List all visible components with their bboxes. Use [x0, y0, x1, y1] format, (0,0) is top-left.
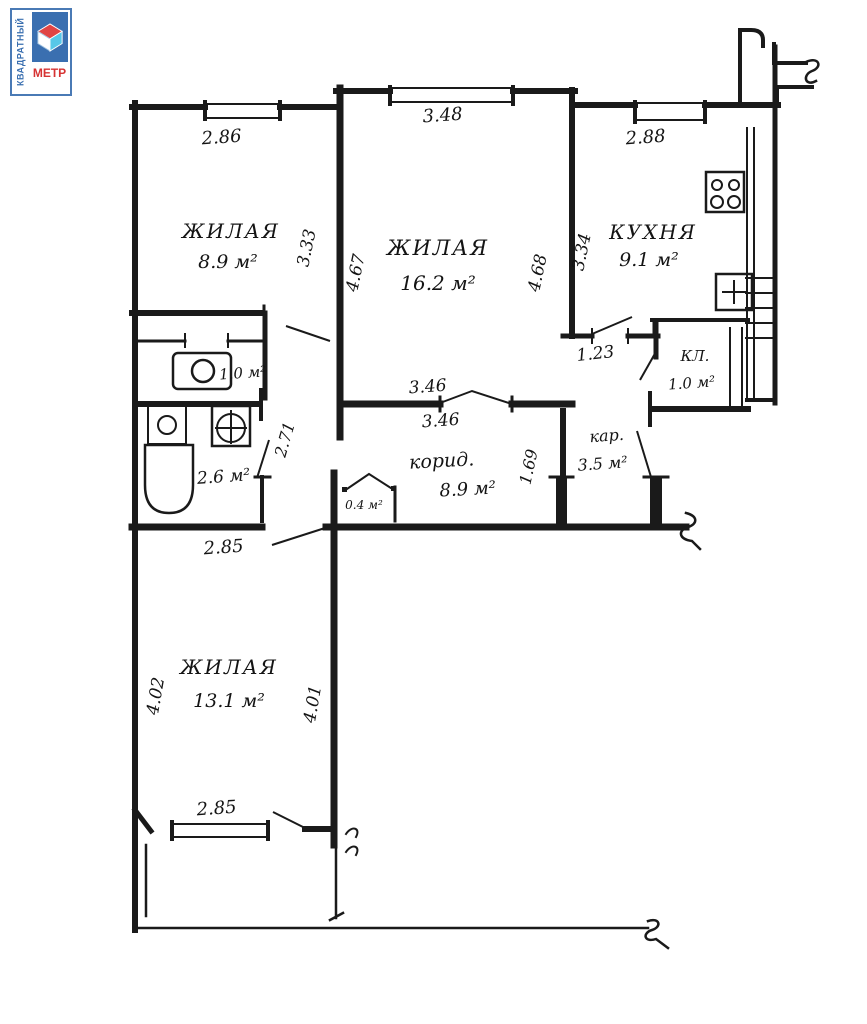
stove-icon: [706, 172, 744, 212]
stove-burner-4: [728, 196, 740, 208]
sink-cross: [722, 280, 746, 304]
label-living2-area: 16.2 м²: [400, 271, 476, 295]
annotations: 2.86 3.48 2.88 ЖИЛАЯ 8.9 м² 3.33 ЖИЛАЯ 1…: [143, 104, 716, 821]
dim-passage: 2.71: [270, 420, 298, 460]
stove-burner-3: [711, 196, 723, 208]
dim-center-left: 4.67: [342, 252, 370, 294]
label-corridor-area: 8.9 м²: [439, 478, 497, 502]
floorplan-drawing: 2.86 3.48 2.88 ЖИЛАЯ 8.9 м² 3.33 ЖИЛАЯ 1…: [0, 0, 867, 1024]
pillar-vestibule-left: [556, 477, 567, 527]
pantry-hinge-right: [391, 486, 396, 491]
pantry-hinge-left: [342, 487, 347, 492]
dim-mid-wall: 2.85: [202, 536, 244, 560]
label-hall-name: кар.: [589, 425, 625, 446]
label-toilet-area: 1.0 м²: [219, 362, 267, 383]
shaft-top-right: [774, 44, 812, 103]
stove-burner-2: [729, 180, 739, 190]
door-bottom-room-leaf: [272, 528, 325, 545]
dim-top-center: 3.48: [422, 104, 463, 128]
label-living3-name: ЖИЛАЯ: [178, 655, 278, 679]
wall-right-inner: [747, 128, 754, 398]
balcony-break-squiggle: [646, 920, 668, 948]
wall-right-ticks: [746, 278, 773, 338]
pointer-bottom-window: [273, 812, 307, 829]
window-bottom-room: [172, 824, 268, 837]
entry-break-squiggle: [681, 513, 700, 549]
door-kitchen-leaf: [592, 317, 632, 334]
door-closet-leaf: [640, 350, 657, 380]
label-corridor-name: корид.: [409, 448, 475, 473]
window-left-room: [205, 104, 280, 118]
door-pantry-fold: [344, 474, 394, 491]
label-bath-area: 2.6 м²: [195, 465, 251, 489]
label-living2-name: ЖИЛАЯ: [385, 236, 489, 260]
bathtub-icon: [145, 445, 193, 513]
label-kitchen-name: КУХНЯ: [608, 220, 697, 244]
label-closet-name: КЛ.: [680, 347, 710, 365]
pillar-vestibule-right: [650, 477, 662, 527]
label-living1-name: ЖИЛАЯ: [180, 219, 280, 243]
column-thin-tail: [330, 845, 343, 920]
washbasin-icon: [148, 406, 186, 444]
door-bath-leaf: [257, 440, 269, 478]
washbasin-bowl: [158, 416, 176, 434]
label-closet-area: 1.0 м²: [668, 372, 716, 393]
toilet-bowl: [192, 360, 214, 382]
stove-burner-1: [712, 180, 722, 190]
dim-top-left: 2.86: [200, 126, 242, 150]
dim-hall-side: 1.69: [516, 447, 542, 486]
door-entry-leaf: [637, 431, 651, 477]
label-living3-area: 13.1 м²: [193, 690, 265, 712]
shaft-top-left: [740, 30, 763, 103]
doors: [257, 317, 657, 829]
door-center-room-leaf: [440, 391, 512, 404]
dim-center-door-bottom: 3.46: [421, 410, 460, 433]
wall-toilet-door-jambs: [185, 334, 228, 347]
closet-shelf-lines: [730, 328, 742, 405]
label-kitchen-area: 9.1 м²: [619, 249, 679, 271]
window-kitchen: [635, 103, 705, 120]
dim-bottom-left-side: 4.02: [143, 676, 169, 718]
dim-kitchen-door: 1.23: [576, 342, 616, 366]
window-center-room: [390, 88, 513, 102]
dim-bottom-right-side: 4.01: [300, 684, 326, 726]
dim-left-room-side: 3.33: [293, 227, 320, 268]
door-left-room-leaf: [286, 326, 330, 341]
bath-sink-icon: [212, 406, 250, 446]
label-pantry-area: 0.4 м²: [345, 498, 383, 512]
washbasin-body: [148, 406, 186, 444]
label-hall-area: 3.5 м²: [577, 452, 628, 474]
dim-center-right: 4.68: [524, 252, 552, 294]
bath-sink-cross: [215, 410, 247, 444]
dim-bottom-window: 2.85: [195, 797, 237, 821]
dim-top-right: 2.88: [624, 126, 666, 150]
dim-center-door-top: 3.46: [408, 376, 447, 399]
label-living1-area: 8.9 м²: [198, 251, 258, 273]
section-curl-marks: [346, 829, 357, 855]
floorplan-page: КВАДРАТНЫЙ МЕТР: [0, 0, 867, 1024]
